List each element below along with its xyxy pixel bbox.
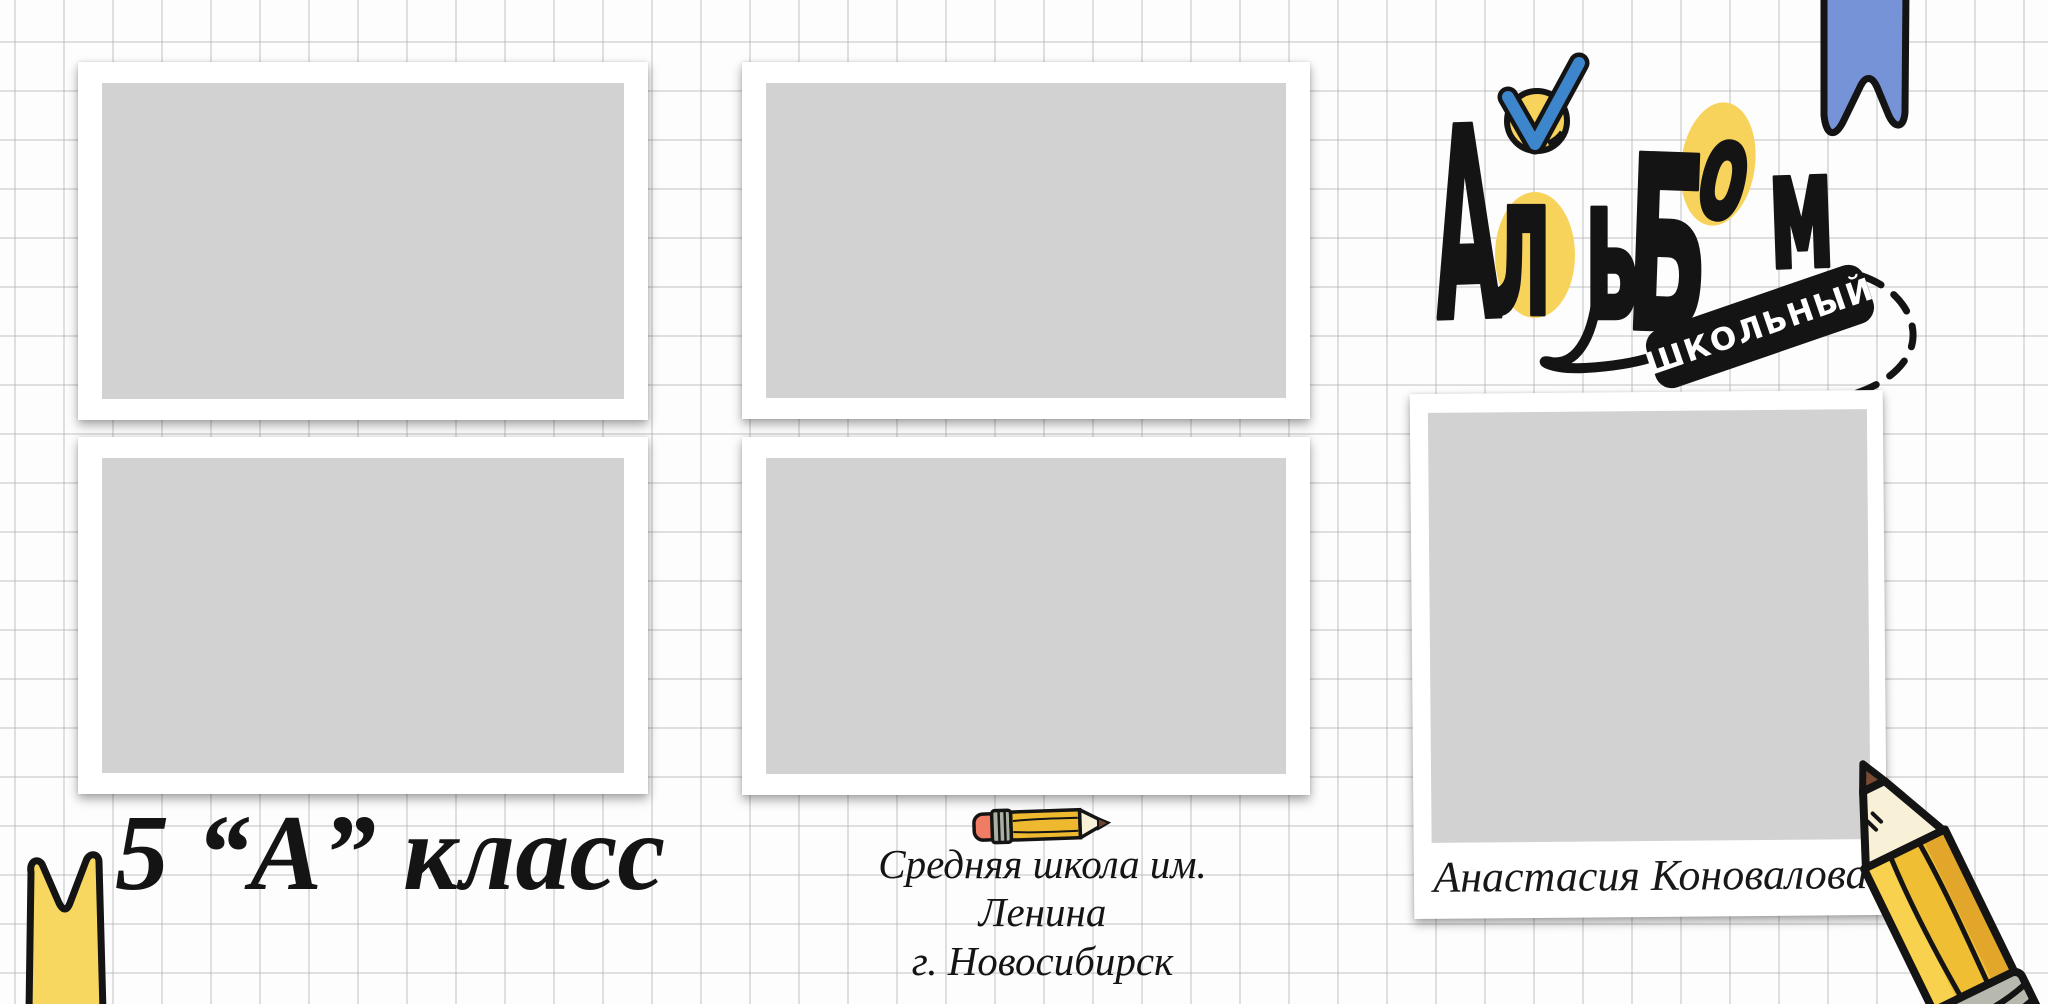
class-name-label: 5 “А” класс [115, 795, 660, 955]
photo-slot-1[interactable] [102, 83, 624, 399]
big-pencil-icon [1755, 725, 2048, 1004]
photo-slot-2[interactable] [102, 458, 624, 773]
photo-frame-top-left [78, 62, 648, 420]
school-label: Средняя школа им. Ленина г. Новосибирск [855, 840, 1230, 985]
school-city-line: г. Новосибирск [855, 937, 1230, 985]
school-name-line: Средняя школа им. Ленина [855, 840, 1230, 937]
photo-slot-3[interactable] [766, 83, 1286, 398]
logo-letter: л [1494, 133, 1551, 362]
small-pencil-icon [967, 795, 1119, 852]
photo-frame-bottom-left [78, 437, 648, 794]
photo-frame-top-center [742, 62, 1310, 419]
logo-letter: А [1428, 72, 1504, 381]
photo-slot-4[interactable] [766, 458, 1286, 774]
album-spread-page: А л ь Б о м ШКОЛЬНЫЙ Анастасия Коновалов… [0, 0, 2048, 1004]
yellow-ribbon-icon [10, 840, 125, 1004]
photo-frame-bottom-center [742, 437, 1310, 795]
blue-ribbon-icon [1805, 0, 1920, 155]
